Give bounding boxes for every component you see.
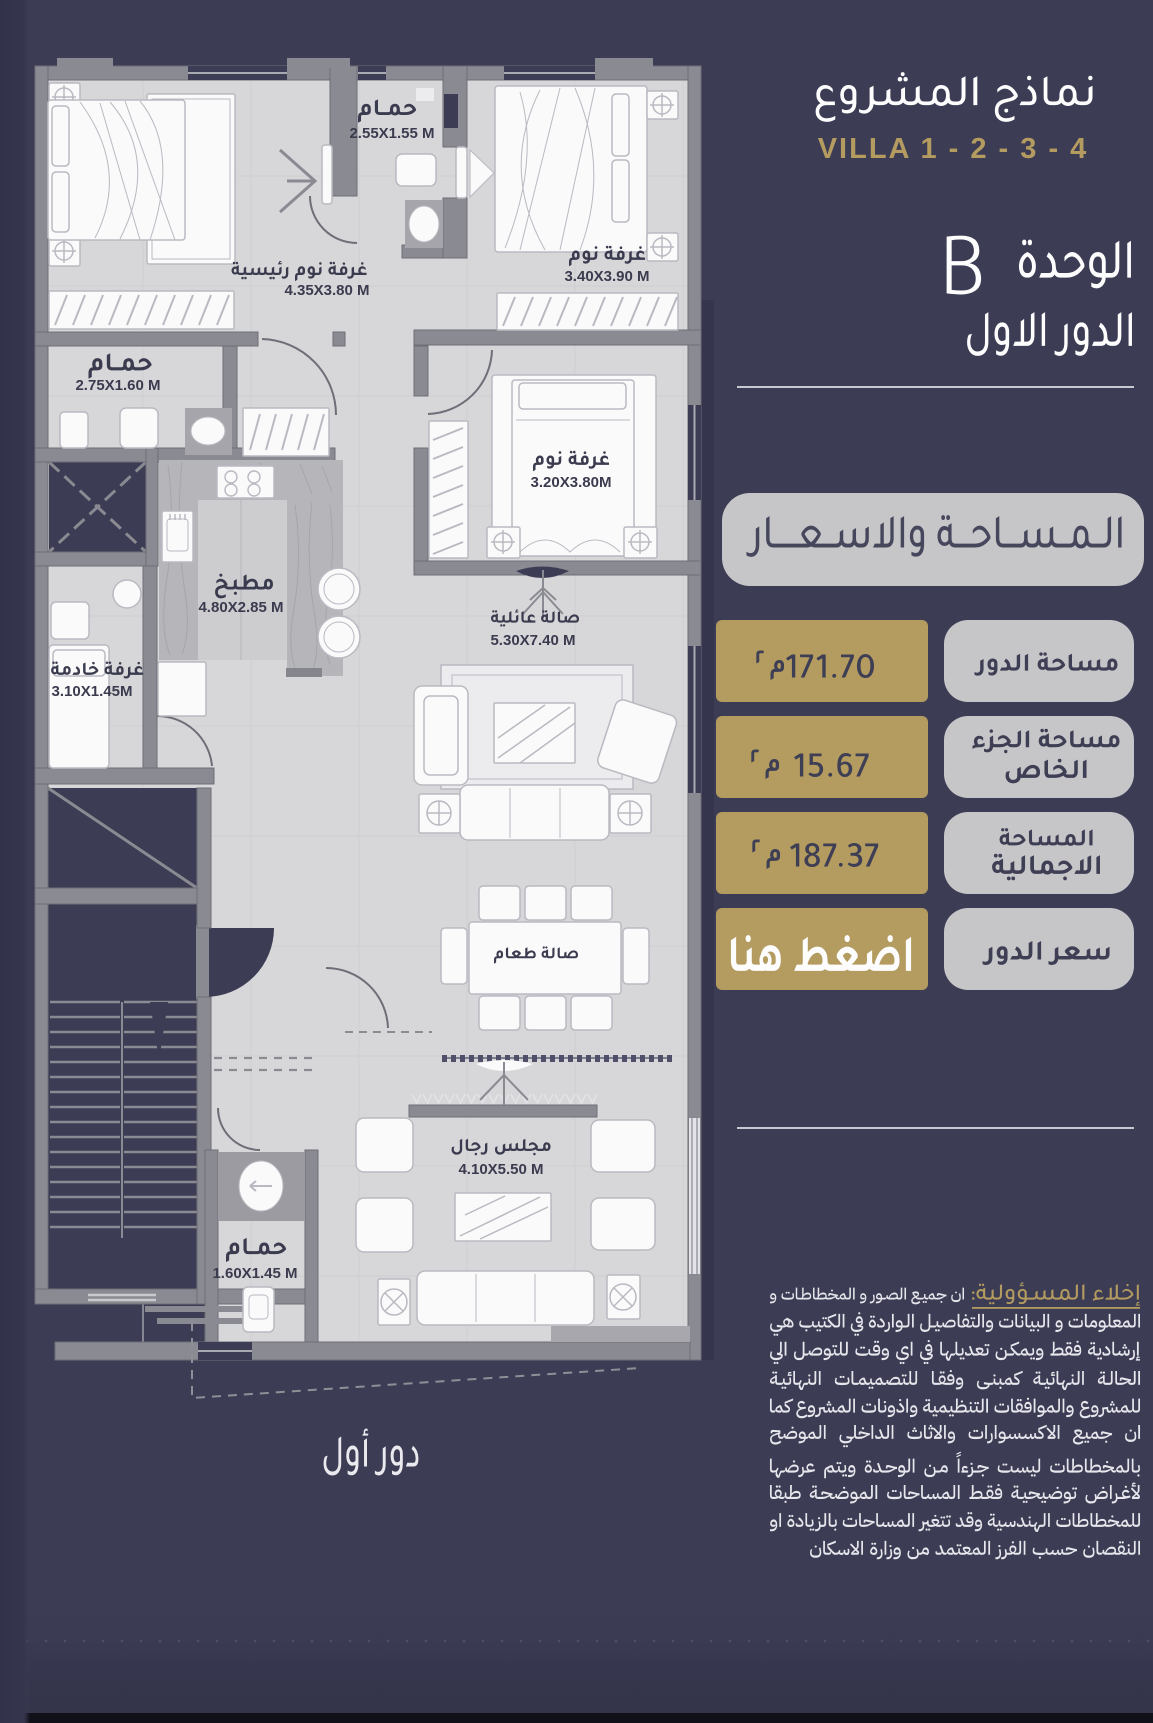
svg-text:3.40X3.90 M: 3.40X3.90 M <box>564 268 649 285</box>
svg-text:4.80X2.85 M: 4.80X2.85 M <box>198 599 283 616</box>
svg-text:2.55X1.55 M: 2.55X1.55 M <box>349 125 434 142</box>
svg-text:3.20X3.80M: 3.20X3.80M <box>531 474 612 491</box>
svg-text:1.60X1.45 M: 1.60X1.45 M <box>212 1265 297 1282</box>
svg-text:5.30X7.40 M: 5.30X7.40 M <box>490 632 575 649</box>
svg-text:3.10X1.45M: 3.10X1.45M <box>52 683 133 700</box>
svg-text:VILLA 1 - 2 - 3 - 4: VILLA 1 - 2 - 3 - 4 <box>818 133 1089 165</box>
svg-text:2.75X1.60 M: 2.75X1.60 M <box>75 377 160 394</box>
svg-text:4.10X5.50 M: 4.10X5.50 M <box>458 1161 543 1178</box>
svg-text:4.35X3.80 M: 4.35X3.80 M <box>284 282 369 299</box>
